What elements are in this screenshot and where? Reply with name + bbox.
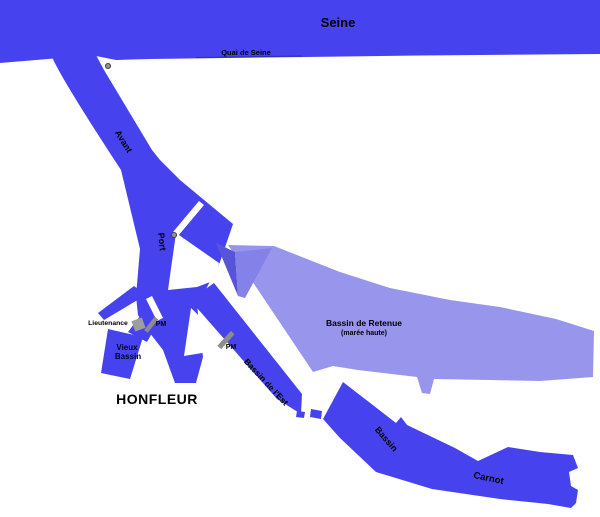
map-canvas: Seine Quai de Seine Avant Port Lieutenan…	[0, 0, 600, 517]
label-pm-vieux-bassin: PM	[156, 321, 167, 328]
label-port: Port	[156, 232, 168, 251]
jetty-head-dot-port	[171, 232, 176, 237]
jetty-head-dot-north	[105, 63, 110, 68]
label-vieux-bassin-line1: Vieux	[116, 343, 138, 352]
lock-connector-shape	[310, 409, 322, 419]
label-retenue-line1: Bassin de Retenue	[326, 318, 402, 328]
label-quai-de-seine: Quai de Seine	[221, 48, 271, 57]
label-lieutenance: Lieutenance	[88, 320, 128, 327]
bassin-carnot-shape	[323, 382, 578, 508]
label-vieux-bassin-line2: Bassin	[115, 352, 141, 361]
honfleur-harbour-map: Seine Quai de Seine Avant Port Lieutenan…	[0, 0, 600, 517]
seine-river-shape	[0, 0, 600, 63]
label-honfleur: HONFLEUR	[116, 391, 198, 407]
lock-stub-shape	[296, 411, 305, 418]
label-seine: Seine	[321, 15, 356, 30]
label-pm-bassin-est: PM	[226, 344, 237, 351]
label-retenue-line2: (marée haute)	[341, 330, 387, 337]
